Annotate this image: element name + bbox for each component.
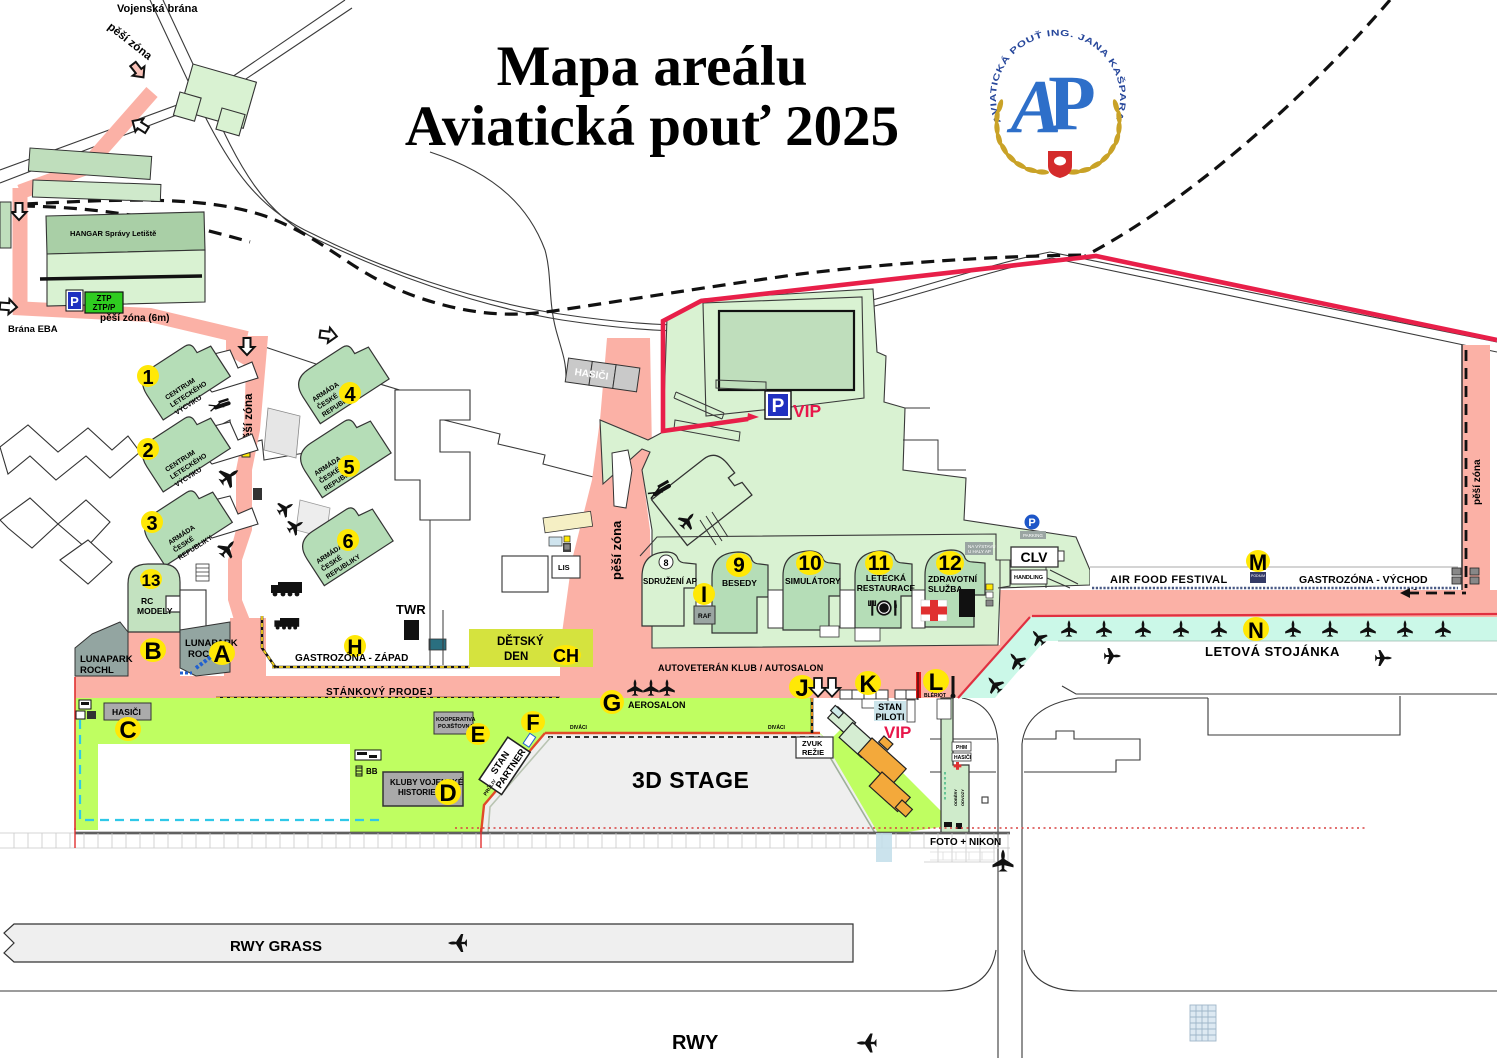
svg-text:G: G bbox=[603, 690, 622, 717]
svg-text:DIVÁCI: DIVÁCI bbox=[768, 724, 786, 731]
svg-text:6: 6 bbox=[342, 531, 353, 553]
svg-text:DIVÁCI: DIVÁCI bbox=[570, 724, 588, 731]
svg-text:HANDLING: HANDLING bbox=[1014, 575, 1043, 581]
svg-text:PHM: PHM bbox=[956, 745, 967, 751]
svg-text:1: 1 bbox=[142, 367, 153, 389]
svg-text:TWR: TWR bbox=[396, 602, 426, 617]
svg-text:ODVOZY: ODVOZY bbox=[960, 789, 965, 806]
svg-text:LUNAPARK: LUNAPARK bbox=[80, 654, 133, 665]
svg-text:N: N bbox=[1248, 618, 1264, 643]
svg-text:12: 12 bbox=[938, 552, 961, 575]
svg-text:VIP: VIP bbox=[793, 401, 822, 421]
svg-text:C: C bbox=[119, 717, 136, 744]
svg-text:RWY: RWY bbox=[672, 1032, 719, 1054]
svg-text:KOOPERATIVA: KOOPERATIVA bbox=[436, 717, 476, 723]
svg-text:REŽIE: REŽIE bbox=[802, 748, 824, 757]
svg-text:13: 13 bbox=[142, 571, 161, 590]
svg-text:STÁNKOVÝ PRODEJ: STÁNKOVÝ PRODEJ bbox=[326, 685, 433, 698]
svg-text:P: P bbox=[1048, 59, 1096, 146]
svg-text:PODIUM: PODIUM bbox=[1251, 574, 1265, 578]
svg-text:11: 11 bbox=[868, 552, 891, 575]
svg-text:DĚTSKÝ: DĚTSKÝ bbox=[497, 635, 544, 648]
svg-text:ZTP: ZTP bbox=[96, 294, 112, 303]
svg-text:I: I bbox=[701, 582, 707, 607]
svg-text:BB: BB bbox=[366, 767, 378, 776]
svg-text:AEROSALON: AEROSALON bbox=[628, 700, 686, 710]
svg-text:U HALY AP: U HALY AP bbox=[968, 549, 991, 554]
svg-text:F: F bbox=[526, 710, 539, 735]
svg-text:5: 5 bbox=[343, 457, 354, 479]
svg-text:ROCHL: ROCHL bbox=[80, 665, 114, 676]
svg-text:PILOTI: PILOTI bbox=[876, 712, 905, 722]
svg-text:RC: RC bbox=[141, 596, 153, 606]
svg-text:HANGAR Správy Letiště: HANGAR Správy Letiště bbox=[70, 229, 156, 238]
svg-text:RAF: RAF bbox=[698, 613, 711, 620]
svg-text:J: J bbox=[795, 675, 808, 702]
svg-text:Aviatická pouť 2025: Aviatická pouť 2025 bbox=[405, 95, 899, 158]
svg-text:M: M bbox=[1249, 550, 1267, 575]
svg-text:SDRUŽENÍ AP: SDRUŽENÍ AP bbox=[643, 577, 698, 586]
svg-text:STAN: STAN bbox=[878, 702, 902, 712]
svg-text:SIMULÁTORY: SIMULÁTORY bbox=[785, 576, 841, 586]
svg-text:MODELY: MODELY bbox=[137, 606, 173, 616]
svg-text:LETECKÁ: LETECKÁ bbox=[866, 573, 906, 583]
svg-text:P: P bbox=[772, 396, 785, 417]
svg-text:9: 9 bbox=[733, 554, 745, 577]
svg-text:BESEDY: BESEDY bbox=[722, 578, 757, 588]
svg-text:RESTAURACE: RESTAURACE bbox=[857, 583, 916, 593]
svg-text:K: K bbox=[859, 671, 877, 698]
svg-text:E: E bbox=[471, 722, 486, 747]
svg-text:Vojenská brána: Vojenská brána bbox=[117, 3, 198, 15]
svg-text:AIR FOOD FESTIVAL: AIR FOOD FESTIVAL bbox=[1110, 574, 1228, 586]
svg-text:3D STAGE: 3D STAGE bbox=[632, 767, 749, 793]
svg-text:CLV: CLV bbox=[1021, 549, 1049, 565]
svg-text:pěší zóna (6m): pěší zóna (6m) bbox=[100, 313, 169, 324]
svg-text:D: D bbox=[439, 780, 456, 807]
svg-text:pěší zóna: pěší zóna bbox=[609, 520, 624, 580]
svg-text:L: L bbox=[929, 669, 944, 696]
svg-text:SLUŽBA: SLUŽBA bbox=[928, 583, 962, 594]
svg-text:LIS: LIS bbox=[558, 563, 570, 572]
svg-text:P: P bbox=[1028, 517, 1035, 529]
svg-text:ZVUK: ZVUK bbox=[802, 739, 823, 748]
svg-text:LETOVÁ STOJÁNKA: LETOVÁ STOJÁNKA bbox=[1205, 644, 1340, 659]
svg-text:DEN: DEN bbox=[504, 651, 528, 663]
svg-text:HASIČI: HASIČI bbox=[954, 754, 972, 761]
svg-text:HASIČI: HASIČI bbox=[112, 706, 141, 717]
svg-text:Mapa areálu: Mapa areálu bbox=[497, 35, 808, 98]
svg-text:A: A bbox=[213, 641, 230, 668]
svg-text:HISTORIE: HISTORIE bbox=[398, 788, 436, 797]
svg-text:ODBĚRY: ODBĚRY bbox=[953, 789, 958, 806]
svg-text:B: B bbox=[144, 638, 161, 665]
svg-text:FOTO + NIKON: FOTO + NIKON bbox=[930, 837, 1001, 848]
svg-text:GASTROZÓNA - VÝCHOD: GASTROZÓNA - VÝCHOD bbox=[1299, 573, 1428, 586]
svg-text:AUTOVETERÁN KLUB / AUTOSALON: AUTOVETERÁN KLUB / AUTOSALON bbox=[658, 663, 823, 673]
svg-text:PARKING: PARKING bbox=[1023, 533, 1043, 538]
svg-text:RWY GRASS: RWY GRASS bbox=[230, 938, 322, 955]
svg-text:8: 8 bbox=[663, 558, 668, 568]
svg-text:ZDRAVOTNÍ: ZDRAVOTNÍ bbox=[928, 574, 978, 584]
svg-text:10: 10 bbox=[798, 552, 821, 575]
svg-text:CH: CH bbox=[553, 646, 579, 666]
svg-text:GASTROZÓNA - ZÁPAD: GASTROZÓNA - ZÁPAD bbox=[295, 651, 408, 664]
svg-text:ZTP/P: ZTP/P bbox=[93, 303, 116, 312]
svg-text:2: 2 bbox=[142, 440, 153, 462]
svg-text:Brána EBA: Brána EBA bbox=[8, 324, 58, 335]
svg-text:3: 3 bbox=[146, 513, 157, 535]
svg-text:pěší zóna: pěší zóna bbox=[1472, 459, 1483, 505]
svg-text:4: 4 bbox=[344, 384, 356, 406]
svg-text:VIP: VIP bbox=[884, 723, 911, 742]
svg-text:P: P bbox=[70, 294, 79, 309]
